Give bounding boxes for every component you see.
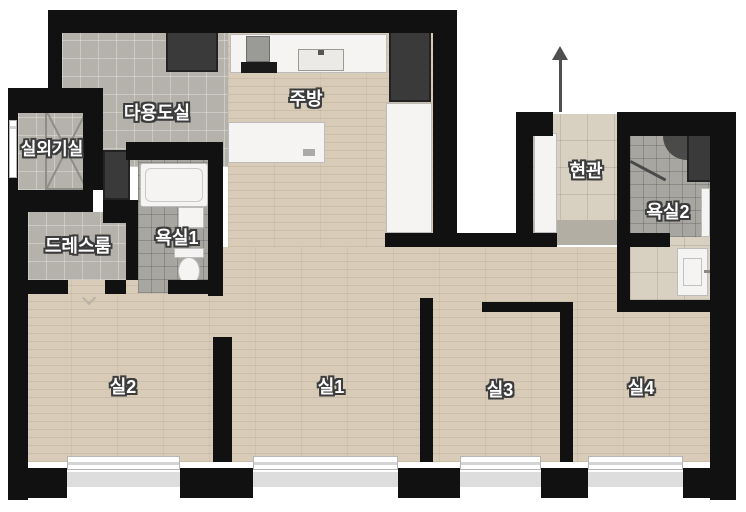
wall bbox=[213, 337, 232, 462]
window bbox=[460, 456, 541, 470]
wall bbox=[620, 300, 710, 312]
wall bbox=[617, 112, 736, 136]
room-label-bathroom-1: 욕실1 bbox=[155, 229, 198, 247]
window bbox=[253, 456, 398, 470]
wall bbox=[48, 33, 62, 90]
island-sink-icon bbox=[303, 149, 315, 156]
wall bbox=[560, 302, 573, 462]
stove-icon bbox=[246, 36, 270, 62]
wall bbox=[28, 468, 67, 498]
wall-pillar bbox=[683, 468, 736, 498]
kitchen-island bbox=[228, 122, 325, 163]
wall bbox=[433, 33, 457, 247]
wall bbox=[516, 112, 553, 136]
window bbox=[588, 456, 683, 470]
window bbox=[9, 120, 17, 178]
wall bbox=[48, 10, 457, 33]
window bbox=[67, 456, 180, 470]
wall bbox=[617, 136, 630, 312]
wall bbox=[385, 233, 557, 247]
room-label-utility: 다용도실 bbox=[124, 104, 190, 122]
entrance-closet bbox=[534, 133, 557, 233]
wall bbox=[103, 200, 126, 223]
wall bbox=[628, 233, 670, 247]
wall bbox=[8, 88, 83, 113]
room-label-dress-room: 드레스룸 bbox=[45, 237, 111, 255]
washbasin-1-icon bbox=[178, 207, 204, 228]
wall bbox=[18, 190, 93, 212]
wall bbox=[126, 200, 138, 280]
bathroom-2-door bbox=[701, 188, 710, 237]
wall bbox=[420, 298, 433, 462]
room-label-room-1: 실1 bbox=[318, 378, 345, 396]
room-label-room-4: 실4 bbox=[628, 379, 655, 397]
room-label-room-2: 실2 bbox=[110, 378, 137, 396]
bathtub-icon bbox=[140, 163, 208, 207]
wall bbox=[8, 455, 28, 500]
wall bbox=[105, 280, 126, 294]
bottom-shadow bbox=[20, 472, 720, 487]
stove-hood bbox=[241, 62, 277, 73]
entry-arrow-shaft bbox=[559, 58, 562, 112]
floor-plan: 다용도실 주방 실외기실 드레스룸 욕실1 현관 욕실2 실2 실1 실3 실4 bbox=[0, 0, 746, 512]
wall bbox=[710, 136, 736, 500]
room-label-outdoor-unit: 실외기실 bbox=[21, 141, 84, 158]
kitchen-storage-cabinet bbox=[386, 103, 432, 233]
wall-pillar bbox=[398, 468, 460, 498]
room-label-bathroom-2: 욕실2 bbox=[646, 203, 689, 221]
wall bbox=[208, 142, 223, 296]
room-label-kitchen: 주방 bbox=[289, 90, 322, 108]
sink-faucet-icon bbox=[318, 50, 324, 55]
wall bbox=[83, 88, 103, 190]
wall-pillar bbox=[541, 468, 588, 498]
wall bbox=[25, 280, 68, 294]
wall bbox=[516, 136, 533, 233]
refrigerator-space bbox=[389, 31, 431, 102]
room-label-entrance: 현관 bbox=[569, 162, 602, 180]
room-label-room-3: 실3 bbox=[487, 381, 514, 399]
wall-pillar bbox=[180, 468, 253, 498]
